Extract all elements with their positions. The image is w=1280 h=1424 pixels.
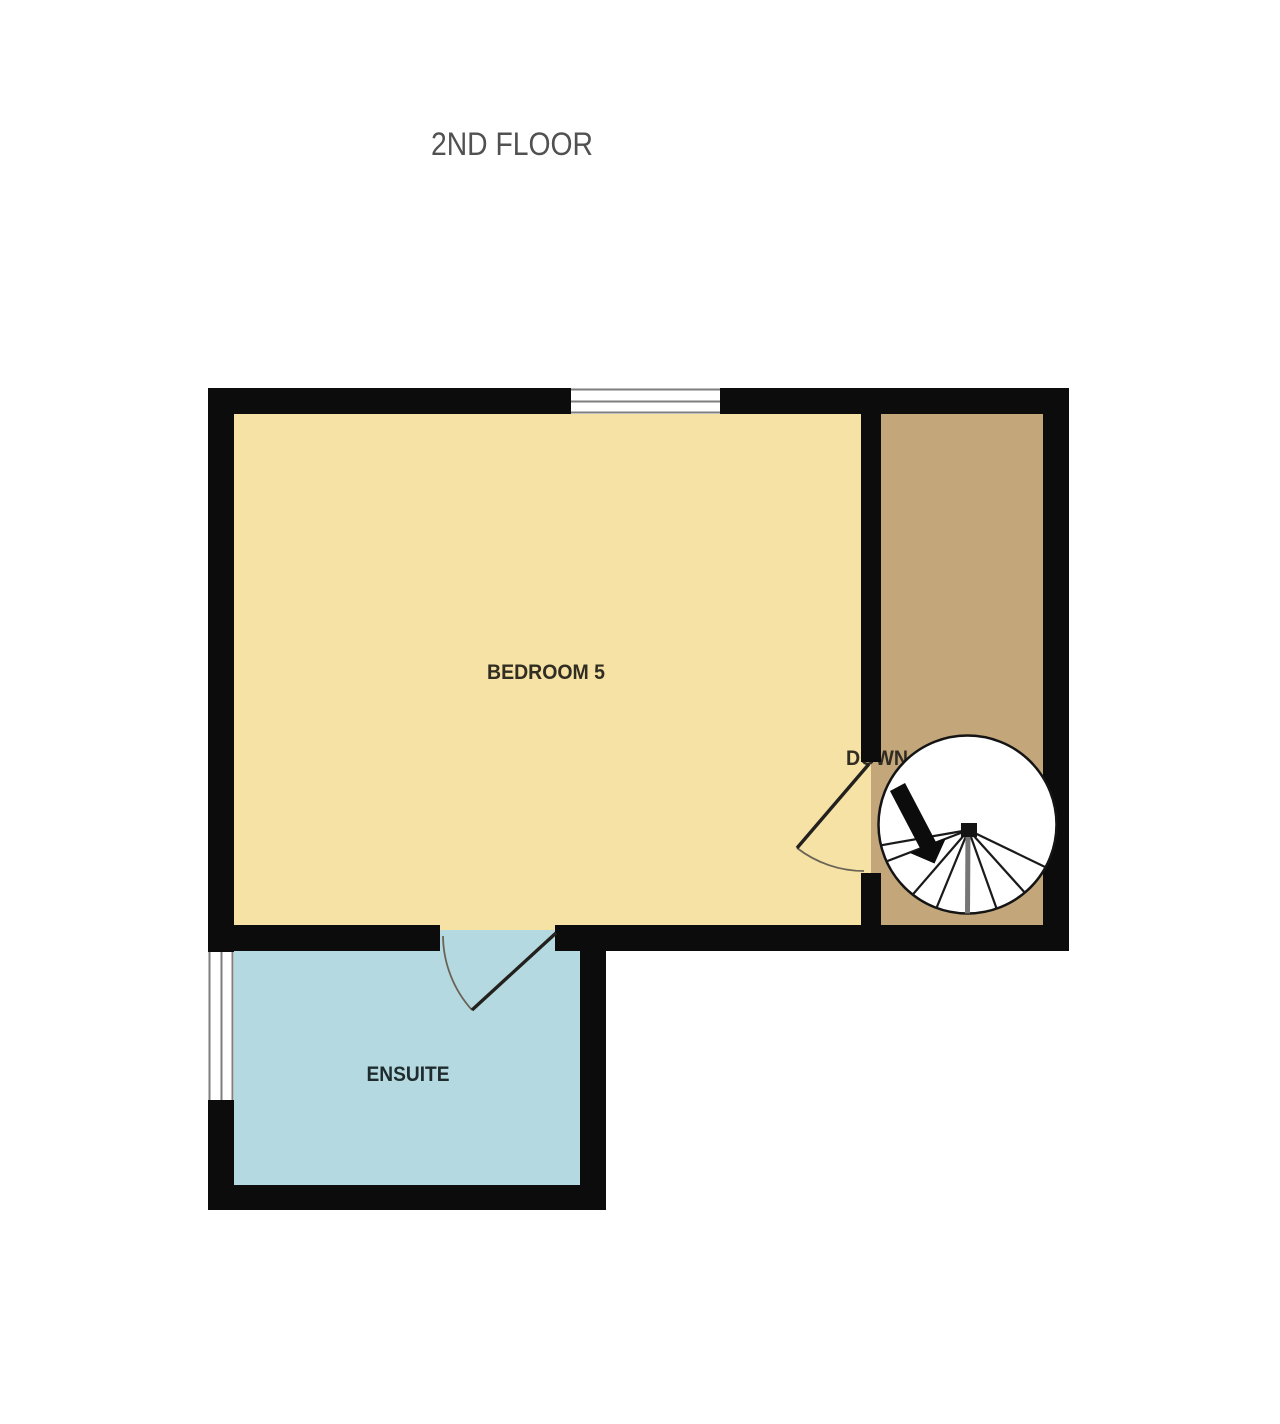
svg-text:ENSUITE: ENSUITE [367,1062,450,1086]
svg-text:BEDROOM 5: BEDROOM 5 [487,660,605,684]
svg-text:2ND FLOOR: 2ND FLOOR [431,126,593,162]
